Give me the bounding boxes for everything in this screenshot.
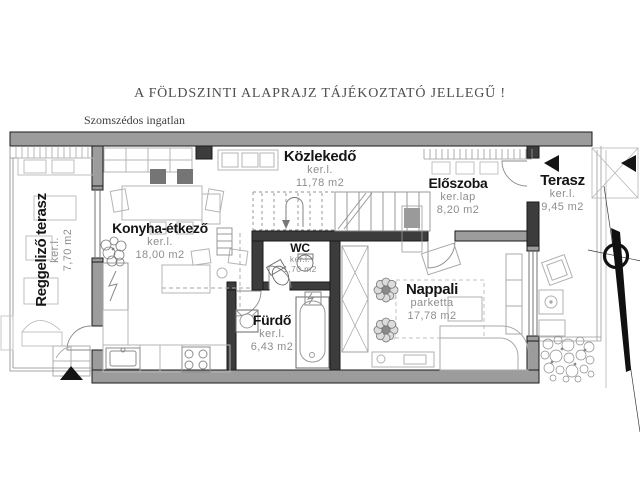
upper-cabinets-icon — [104, 148, 192, 172]
neighbor-label: Szomszédos ingatlan — [84, 113, 185, 128]
room-finish: parketta — [372, 297, 492, 310]
shrub-icon — [541, 336, 594, 382]
room-name: Nappali — [372, 282, 492, 297]
wc-divider-b — [290, 282, 330, 290]
right-window-glazing — [529, 251, 537, 336]
wc-left-wall — [252, 241, 263, 290]
north-arrow-icon — [588, 186, 640, 432]
right-window-cap-bot — [527, 336, 539, 341]
left-wall-a — [92, 146, 103, 186]
stair-break-lines — [338, 193, 372, 229]
room-finish: ker.l. — [270, 254, 330, 264]
left-wall-b — [92, 262, 103, 326]
kitchen-side-unit — [103, 310, 128, 345]
room-label-terasz: Terasz ker.l. 9,45 m2 — [505, 173, 620, 214]
room-label-konyha-etkezo: Konyha-étkező ker.l. 18,00 m2 — [100, 221, 220, 262]
furdo-left-corner — [227, 282, 236, 290]
room-area: 18,00 m2 — [100, 249, 220, 262]
railing-ticks — [16, 146, 88, 158]
room-label-kozlekedo: Közlekedő ker.l. 11,78 m2 — [260, 149, 380, 190]
stool-2 — [228, 249, 248, 265]
coatrack-ticks — [424, 149, 532, 159]
kitchen-sink-icon — [106, 348, 140, 369]
room-finish: ker.l. — [260, 164, 380, 177]
terrace-arrow-icon — [544, 155, 559, 172]
right-window-cap-top — [527, 246, 539, 251]
dining-chair-dark-1 — [150, 169, 166, 184]
room-label-nappali: Nappali parketta 17,78 m2 — [372, 282, 492, 323]
stair-walkline-arrowhead — [282, 220, 290, 229]
room-label-eloszoba: Előszoba ker.lap 8,20 m2 — [398, 176, 518, 217]
dining-table-icon — [122, 186, 202, 220]
room-finish: ker.l. — [505, 188, 620, 201]
room-name: Közlekedő — [260, 149, 380, 164]
nappali-door-swing — [428, 241, 455, 268]
room-name: Előszoba — [398, 176, 518, 191]
wardrobe-icon — [342, 246, 368, 352]
room-label-reggelizo-terasz: Reggeliző terasz ker.l. 7,70 m2 — [34, 170, 90, 330]
room-finish: ker.l. — [49, 170, 62, 330]
stove-icon — [182, 347, 210, 372]
terrace-box-2 — [539, 320, 565, 336]
room-label-wc: WC ker.l. 1,70 m2 — [270, 242, 330, 274]
room-finish: ker.l. — [212, 328, 332, 341]
dining-chair-right — [205, 189, 223, 212]
room-area: 7,70 m2 — [62, 170, 75, 330]
terrace-box-icon — [539, 290, 563, 314]
tv-cabinet-icon — [372, 352, 434, 367]
dining-chair-dark-2 — [177, 169, 193, 184]
room-finish: ker.lap — [398, 191, 518, 204]
room-label-furdo: Fürdő ker.l. 6,43 m2 — [212, 313, 332, 354]
left-wall-c — [92, 350, 103, 372]
wc-divider-a — [263, 282, 269, 290]
room-area: 6,43 m2 — [212, 341, 332, 354]
edge-arrow-icon — [621, 155, 636, 172]
water-heater-icon — [103, 263, 128, 310]
room-name: Konyha-étkező — [100, 221, 220, 236]
room-name: Terasz — [505, 173, 620, 188]
page-title: A FÖLDSZINTI ALAPRAJZ TÁJÉKOZTATÓ JELLEG… — [0, 86, 640, 102]
sofa-chaise — [506, 254, 522, 334]
room-name: Reggeliző terasz — [34, 170, 49, 330]
armchair-icon — [421, 243, 460, 274]
terrace-chair-icon — [542, 255, 573, 286]
room-area: 1,70 m2 — [270, 264, 330, 274]
room-area: 11,78 m2 — [260, 177, 380, 190]
top-pier — [196, 146, 212, 159]
room-area: 9,45 m2 — [505, 201, 620, 214]
top-wall — [10, 132, 592, 146]
room-name: Fürdő — [212, 313, 332, 328]
terrace-furniture — [539, 255, 572, 336]
counter-icon — [103, 345, 230, 372]
room-name: WC — [270, 242, 330, 254]
planter-box — [1, 316, 13, 350]
floor-plan-drawing — [0, 0, 640, 480]
left-window-cap-top — [92, 186, 103, 190]
floor-plan-page: A FÖLDSZINTI ALAPRAJZ TÁJÉKOZTATÓ JELLEG… — [0, 0, 640, 480]
mid-wall-gray — [455, 231, 527, 241]
room-area: 8,20 m2 — [398, 204, 518, 217]
room-area: 17,78 m2 — [372, 310, 492, 323]
dining-chair-left — [110, 189, 128, 212]
boiler-icon — [305, 292, 321, 305]
right-wall-bot — [527, 341, 539, 370]
desk-icon — [162, 265, 227, 293]
room-finish: ker.l. — [100, 236, 220, 249]
right-jamb-top — [527, 146, 539, 158]
